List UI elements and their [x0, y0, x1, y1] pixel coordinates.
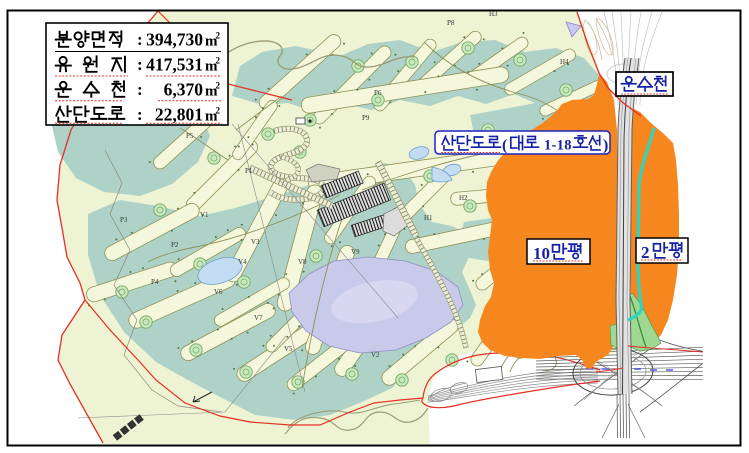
svg-text:2: 2	[216, 106, 221, 116]
svg-text:P4: P4	[151, 278, 159, 286]
svg-text:P5: P5	[186, 132, 194, 140]
svg-text:): )	[603, 137, 608, 154]
svg-text::: :	[137, 55, 143, 74]
svg-text:V6: V6	[214, 288, 223, 296]
svg-text:V9: V9	[351, 248, 360, 256]
svg-text:H4: H4	[560, 58, 569, 66]
svg-text:V7: V7	[254, 314, 263, 322]
svg-text:2: 2	[216, 31, 221, 41]
svg-text:417,531: 417,531	[146, 55, 203, 75]
svg-text:2: 2	[641, 243, 650, 262]
svg-text:P2: P2	[171, 241, 179, 249]
svg-text:V3: V3	[251, 238, 260, 246]
svg-text:H3: H3	[489, 10, 498, 18]
svg-text:P3: P3	[120, 216, 128, 224]
svg-text:P6: P6	[374, 89, 382, 97]
svg-text:6,370: 6,370	[164, 80, 204, 100]
svg-text:1-18: 1-18	[544, 138, 572, 154]
svg-text:P8: P8	[447, 19, 455, 27]
svg-text:394,730: 394,730	[146, 30, 203, 50]
svg-text:V4: V4	[238, 258, 247, 266]
svg-text:2: 2	[216, 56, 221, 66]
svg-text:V5: V5	[284, 345, 293, 353]
svg-text:P1: P1	[245, 167, 253, 175]
svg-text:22,801: 22,801	[155, 105, 203, 125]
svg-text::: :	[137, 30, 143, 49]
svg-text:P9: P9	[362, 114, 370, 122]
svg-text:(: (	[502, 137, 507, 154]
svg-text:V1: V1	[200, 211, 209, 219]
svg-text:V8: V8	[298, 258, 307, 266]
svg-text:10: 10	[533, 244, 550, 263]
svg-text::: :	[137, 80, 143, 99]
svg-text:V2: V2	[371, 351, 380, 359]
svg-text:2: 2	[216, 81, 221, 91]
svg-text::: :	[137, 105, 143, 124]
svg-text:H2: H2	[459, 194, 468, 202]
svg-text:H1: H1	[424, 214, 433, 222]
